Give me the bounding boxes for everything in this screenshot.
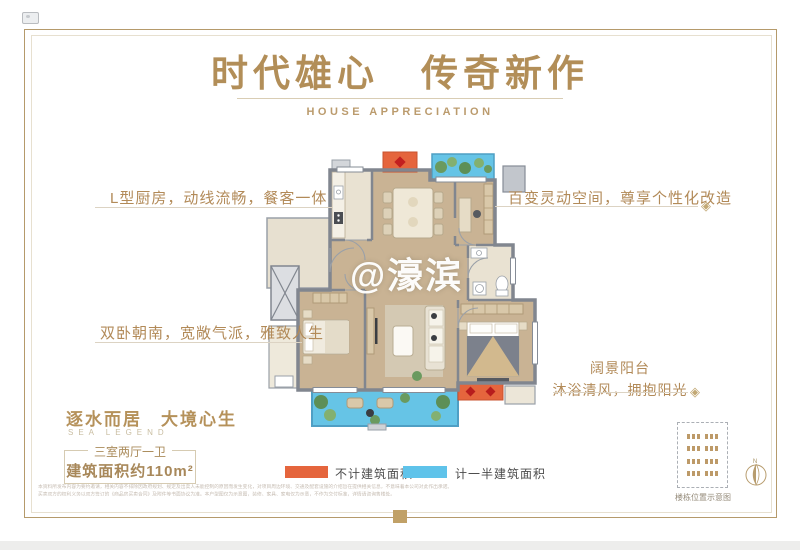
- slogan: 逐水而居 大境心生: [66, 405, 237, 430]
- bay-bottomright: [505, 386, 535, 404]
- compass-icon: N: [742, 456, 770, 488]
- watermark: @濠滨: [350, 247, 463, 299]
- annotation-balcony-line: [553, 392, 688, 393]
- kitchen-furniture: [332, 172, 345, 238]
- disclaimer-line1: 本资料所发布内容为要约邀请，相关内容不排除因政府规划、规定及出卖人未能控制的原因…: [38, 484, 330, 491]
- annotation-flex-line: [495, 206, 698, 207]
- legend-swatch-orange: [285, 466, 328, 478]
- legend-label-blue: 计一半建筑面积: [455, 465, 546, 482]
- annotation-flex-ornament: ◈: [701, 199, 711, 212]
- frame-bottom-ornament: [393, 510, 407, 523]
- page-title: 时代雄心 传奇新作: [0, 56, 800, 93]
- compass-north-label: N: [753, 459, 757, 465]
- annotation-balcony: 阔景阳台 沐浴清风，拥抱阳光: [545, 358, 695, 400]
- disclaimer: 本资料所发布内容为要约邀请，相关内容不排除因政府规划、规定及出卖人未能控制的原因…: [38, 484, 330, 498]
- title-divider: [237, 98, 563, 99]
- annotation-balcony-sub: 沐浴清风，拥抱阳光: [545, 380, 695, 400]
- elevator: [271, 266, 299, 320]
- ac-platform-bottomright: [458, 383, 503, 400]
- annotation-balcony-ornament: ◈: [690, 385, 700, 398]
- page-bottom-edge: [0, 541, 800, 550]
- unit-type: 三室两厅一卫: [88, 443, 172, 460]
- annotation-balcony-title: 阔景阳台: [545, 358, 695, 378]
- slogan-en: SEA LEGEND: [68, 428, 169, 437]
- unit-area: 建筑面积约110m²: [65, 460, 195, 481]
- dining-set: [383, 188, 443, 238]
- legend-label-orange: 不计建筑面积: [335, 465, 413, 482]
- unit-info-box: 三室两厅一卫 建筑面积约110m²: [64, 450, 196, 484]
- legend-swatch-blue: [403, 466, 447, 478]
- annotation-bedrooms-line: [95, 342, 302, 343]
- balcony: [312, 390, 458, 430]
- site-map-box: [677, 422, 728, 488]
- annotation-bedrooms: 双卧朝南，宽敞气派，雅致人生: [100, 322, 324, 343]
- annotation-flex: 百变灵动空间，尊享个性化改造: [508, 187, 732, 208]
- site-map-caption: 楼栋位置示意图: [669, 492, 737, 503]
- poster-page: 时代雄心 传奇新作 HOUSE APPRECIATION: [0, 0, 800, 550]
- image-placeholder-icon: [22, 12, 39, 24]
- disclaimer-line2: 买卖双方的权利义务以双方签订的《商品房买卖合同》及附件等书面协议为准。本户型图仅…: [38, 491, 330, 498]
- flower-bed-top: [432, 154, 494, 180]
- annotation-kitchen: L型厨房，动线流畅，餐客一体: [110, 187, 327, 208]
- page-subtitle: HOUSE APPRECIATION: [0, 106, 800, 118]
- annotation-kitchen-line: [95, 207, 332, 208]
